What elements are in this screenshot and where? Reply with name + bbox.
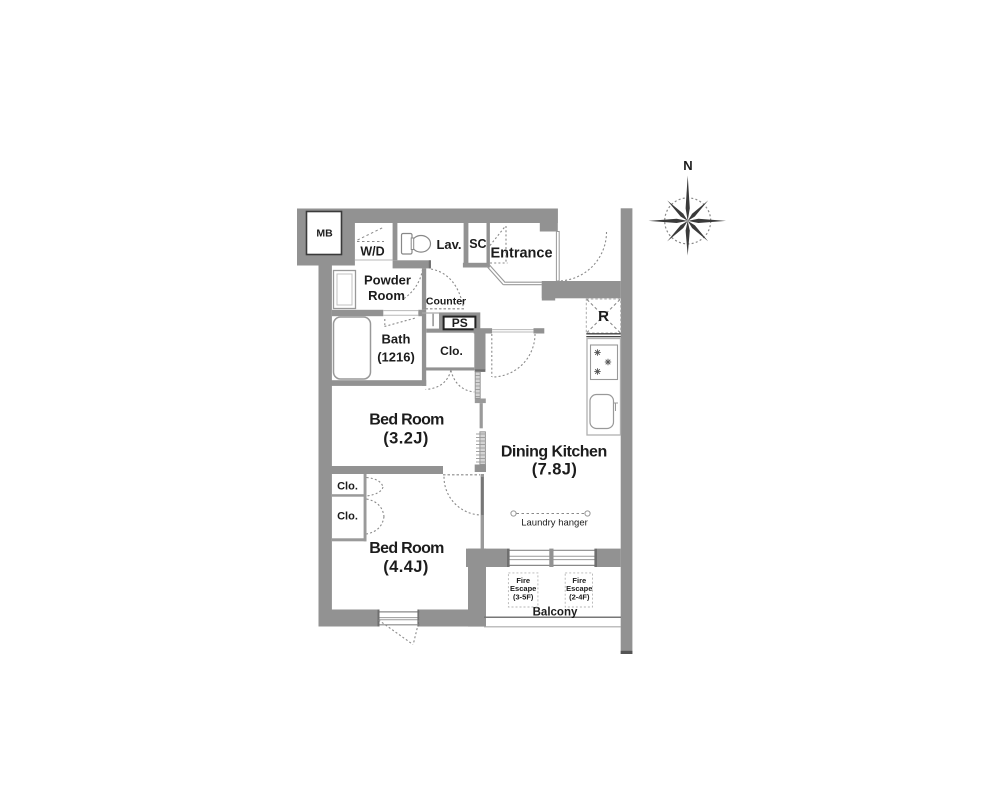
- svg-text:(3-5F): (3-5F): [513, 593, 534, 602]
- svg-text:Room: Room: [368, 288, 405, 303]
- svg-text:Bed Room: Bed Room: [369, 540, 444, 557]
- svg-text:Balcony: Balcony: [533, 607, 578, 619]
- svg-text:MB: MB: [316, 228, 333, 240]
- svg-text:Clo.: Clo.: [337, 511, 358, 523]
- svg-text:R: R: [598, 308, 609, 325]
- svg-text:Bed Room: Bed Room: [369, 412, 444, 429]
- svg-text:(1216): (1216): [377, 350, 415, 365]
- svg-text:Dining Kitchen: Dining Kitchen: [501, 444, 607, 461]
- svg-text:(7.8J): (7.8J): [532, 461, 578, 479]
- svg-text:(3.2J): (3.2J): [383, 430, 429, 448]
- svg-text:(4.4J): (4.4J): [383, 558, 429, 576]
- svg-text:Lav.: Lav.: [436, 237, 461, 252]
- svg-text:Counter: Counter: [426, 296, 466, 308]
- svg-text:Clo.: Clo.: [337, 481, 358, 493]
- svg-text:Clo.: Clo.: [440, 344, 463, 358]
- svg-text:PS: PS: [452, 316, 468, 330]
- svg-text:(2-4F): (2-4F): [569, 593, 590, 602]
- svg-text:Entrance: Entrance: [490, 246, 552, 262]
- svg-text:Laundry hanger: Laundry hanger: [521, 518, 588, 529]
- svg-text:W/D: W/D: [360, 245, 384, 259]
- svg-text:Powder: Powder: [364, 273, 411, 288]
- svg-text:SC: SC: [469, 237, 486, 251]
- svg-text:Bath: Bath: [382, 332, 411, 347]
- svg-text:N: N: [683, 158, 692, 173]
